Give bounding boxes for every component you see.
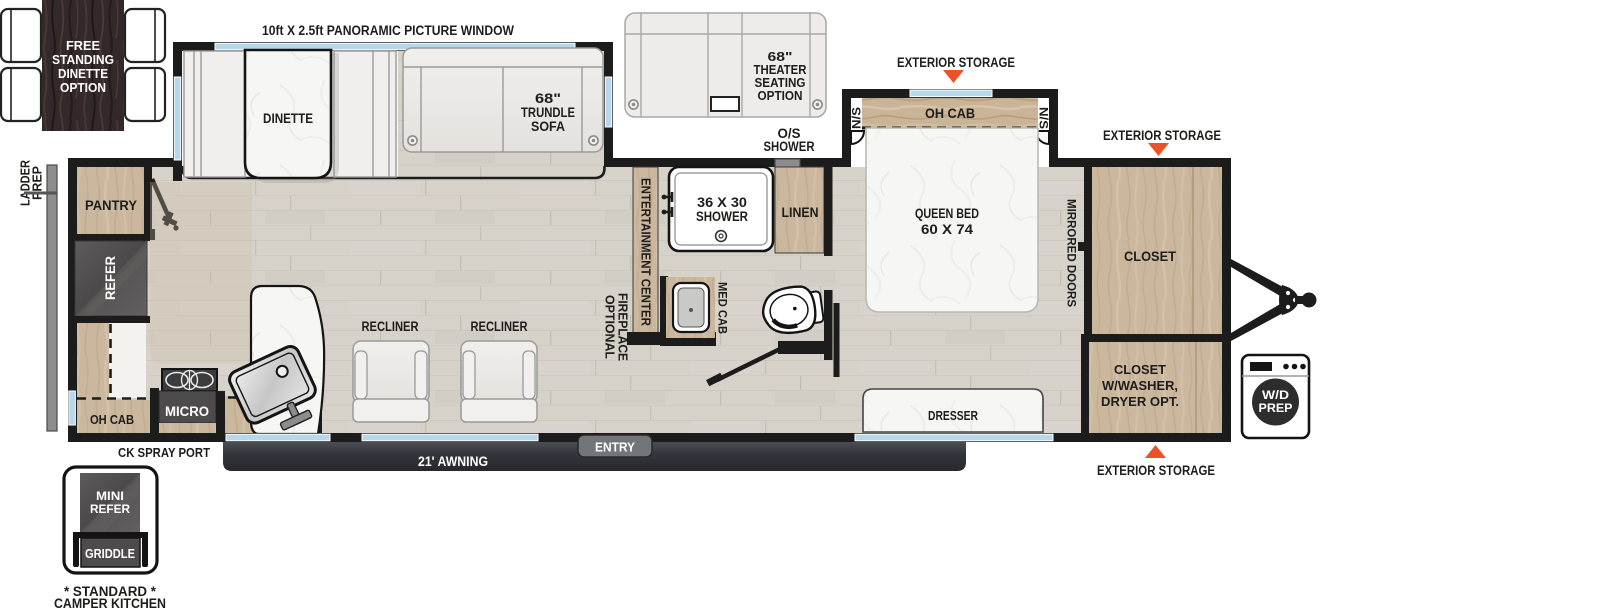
svg-text:QUEEN BED: QUEEN BED: [915, 206, 979, 221]
svg-text:W/D: W/D: [1262, 388, 1289, 402]
svg-text:68": 68": [535, 91, 561, 106]
svg-text:OPTION: OPTION: [60, 80, 106, 95]
svg-text:OH CAB: OH CAB: [925, 106, 975, 121]
svg-text:REFER: REFER: [103, 256, 118, 300]
svg-text:21' AWNING: 21' AWNING: [418, 454, 488, 469]
svg-text:SOFA: SOFA: [531, 119, 565, 134]
svg-text:36 X 30: 36 X 30: [697, 195, 747, 210]
svg-text:PREP: PREP: [31, 166, 45, 200]
svg-text:EXTERIOR STORAGE: EXTERIOR STORAGE: [1103, 128, 1221, 143]
svg-text:TRUNDLE: TRUNDLE: [521, 105, 575, 120]
svg-text:RECLINER: RECLINER: [362, 319, 419, 334]
svg-text:60 X 74: 60 X 74: [921, 222, 974, 237]
svg-text:MIRRORED DOORS: MIRRORED DOORS: [1065, 199, 1079, 307]
svg-text:DINETTE: DINETTE: [58, 66, 108, 81]
svg-text:10ft X 2.5ft PANORAMIC PICTURE: 10ft X 2.5ft PANORAMIC PICTURE WINDOW: [262, 23, 514, 38]
svg-text:CLOSET: CLOSET: [1114, 362, 1166, 377]
svg-text:ENTRY: ENTRY: [595, 440, 635, 455]
svg-text:MINI: MINI: [96, 489, 124, 503]
svg-text:SHOWER: SHOWER: [764, 139, 815, 154]
svg-text:RECLINER: RECLINER: [471, 319, 528, 334]
svg-text:STANDING: STANDING: [52, 52, 114, 67]
svg-text:FREE: FREE: [66, 38, 100, 53]
svg-text:CAMPER KITCHEN: CAMPER KITCHEN: [54, 596, 166, 609]
svg-text:DRYER OPT.: DRYER OPT.: [1101, 394, 1179, 409]
svg-text:SHOWER: SHOWER: [696, 209, 748, 224]
svg-text:LINEN: LINEN: [782, 205, 819, 220]
svg-text:W/WASHER,: W/WASHER,: [1102, 378, 1178, 393]
svg-text:ENTERTAINMENT CENTER: ENTERTAINMENT CENTER: [639, 178, 653, 326]
svg-text:CK SPRAY PORT: CK SPRAY PORT: [118, 445, 210, 460]
svg-text:GRIDDLE: GRIDDLE: [85, 547, 135, 561]
svg-text:OPTION: OPTION: [758, 88, 803, 103]
svg-text:MICRO: MICRO: [165, 404, 209, 419]
svg-text:PANTRY: PANTRY: [85, 198, 137, 213]
svg-text:MED CAB: MED CAB: [716, 282, 730, 334]
svg-text:PREP: PREP: [1259, 401, 1293, 415]
svg-text:REFER: REFER: [90, 502, 130, 516]
svg-text:EXTERIOR STORAGE: EXTERIOR STORAGE: [1097, 463, 1215, 478]
svg-text:EXTERIOR STORAGE: EXTERIOR STORAGE: [897, 55, 1015, 70]
svg-text:N/S: N/S: [1037, 107, 1049, 129]
svg-text:N/S: N/S: [852, 107, 864, 129]
svg-text:CLOSET: CLOSET: [1124, 249, 1177, 264]
svg-text:DINETTE: DINETTE: [263, 110, 313, 126]
svg-text:OH CAB: OH CAB: [90, 412, 134, 427]
svg-text:OPTIONAL: OPTIONAL: [603, 295, 617, 359]
svg-text:DRESSER: DRESSER: [928, 408, 978, 423]
svg-text:FIREPLACE: FIREPLACE: [616, 293, 630, 361]
